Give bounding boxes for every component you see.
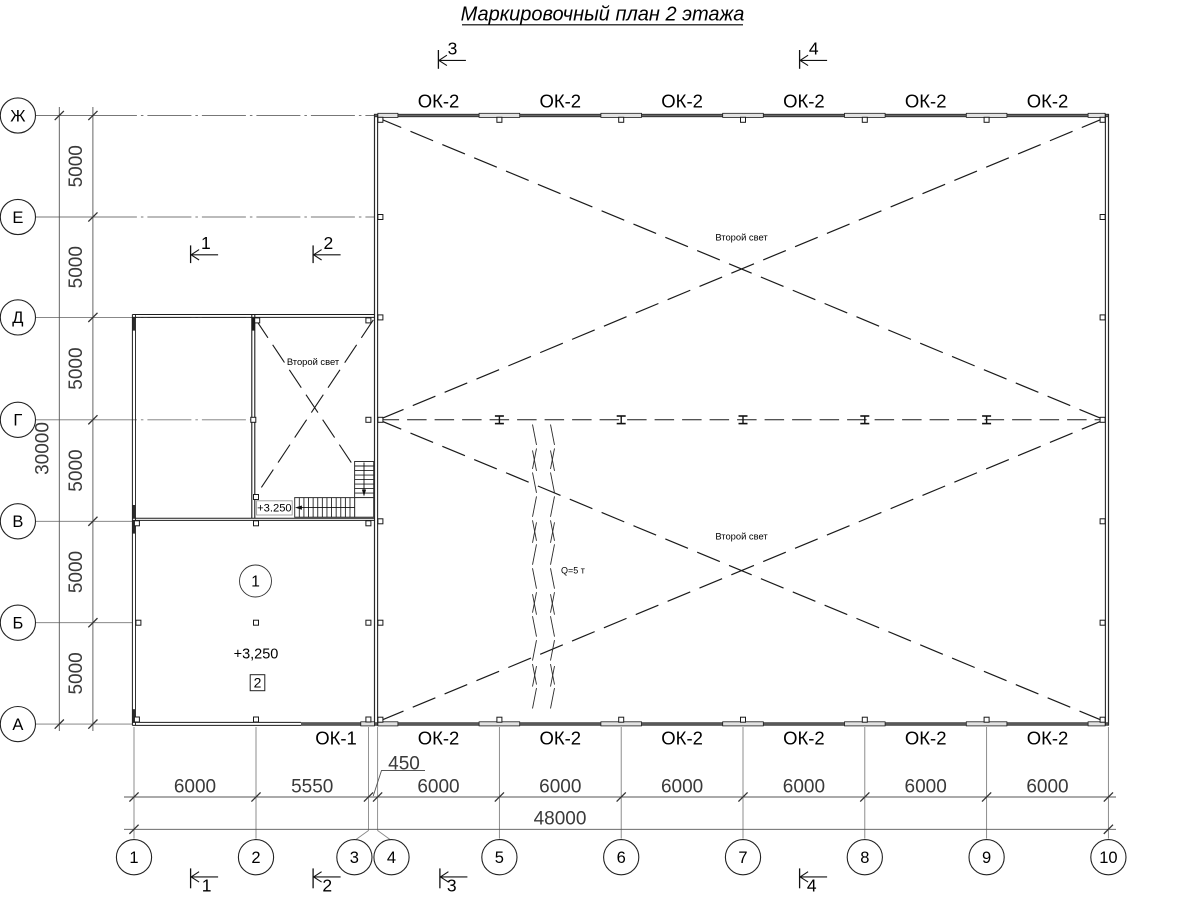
svg-text:2: 2 <box>322 875 332 895</box>
svg-text:6000: 6000 <box>661 777 703 798</box>
svg-text:5000: 5000 <box>66 347 87 389</box>
svg-text:Ж: Ж <box>10 107 26 125</box>
svg-text:4: 4 <box>809 39 819 59</box>
svg-text:Г: Г <box>13 412 22 430</box>
svg-text:6: 6 <box>617 849 626 867</box>
svg-text:А: А <box>12 716 23 734</box>
svg-text:ОК-2: ОК-2 <box>905 91 947 112</box>
svg-text:2: 2 <box>324 233 334 253</box>
svg-text:Второй свет: Второй свет <box>715 531 768 542</box>
svg-text:+3,250: +3,250 <box>234 647 279 663</box>
svg-text:1: 1 <box>201 233 211 253</box>
svg-text:Второй свет: Второй свет <box>715 232 768 243</box>
svg-text:6000: 6000 <box>417 777 459 798</box>
svg-text:5000: 5000 <box>66 551 87 593</box>
svg-text:5: 5 <box>495 849 504 867</box>
svg-text:ОК-1: ОК-1 <box>315 728 357 749</box>
svg-text:ОК-2: ОК-2 <box>661 728 703 749</box>
svg-text:450: 450 <box>388 754 420 775</box>
svg-text:2: 2 <box>254 675 262 691</box>
svg-text:Б: Б <box>12 615 23 633</box>
svg-text:1: 1 <box>202 875 212 895</box>
svg-text:Второй свет: Второй свет <box>287 356 340 367</box>
svg-text:7: 7 <box>738 849 747 867</box>
svg-text:3: 3 <box>447 875 457 895</box>
svg-text:ОК-2: ОК-2 <box>783 728 825 749</box>
svg-text:6000: 6000 <box>783 777 825 798</box>
svg-text:Q=5 т: Q=5 т <box>561 566 585 576</box>
svg-text:6000: 6000 <box>174 777 216 798</box>
svg-text:48000: 48000 <box>534 809 587 830</box>
svg-text:ОК-2: ОК-2 <box>539 91 581 112</box>
svg-text:6000: 6000 <box>905 777 947 798</box>
svg-text:ОК-2: ОК-2 <box>1027 728 1069 749</box>
svg-text:ОК-2: ОК-2 <box>905 728 947 749</box>
svg-text:3: 3 <box>350 849 359 867</box>
svg-text:8: 8 <box>860 849 869 867</box>
svg-text:2: 2 <box>251 849 260 867</box>
svg-text:1: 1 <box>129 849 138 867</box>
svg-text:ОК-2: ОК-2 <box>1027 91 1069 112</box>
svg-text:5000: 5000 <box>66 246 87 288</box>
svg-text:9: 9 <box>982 849 991 867</box>
svg-text:10: 10 <box>1099 849 1117 867</box>
svg-text:3: 3 <box>448 39 458 59</box>
svg-text:ОК-2: ОК-2 <box>661 91 703 112</box>
svg-text:5000: 5000 <box>66 145 87 187</box>
svg-text:4: 4 <box>807 875 817 895</box>
svg-text:ОК-2: ОК-2 <box>418 91 460 112</box>
svg-text:Д: Д <box>12 309 23 327</box>
svg-text:5000: 5000 <box>66 652 87 694</box>
svg-text:ОК-2: ОК-2 <box>539 728 581 749</box>
svg-text:В: В <box>12 513 23 531</box>
svg-text:Маркировочный план 2 этажа: Маркировочный план 2 этажа <box>461 4 745 26</box>
svg-text:+3.250: +3.250 <box>257 503 292 515</box>
svg-text:6000: 6000 <box>539 777 581 798</box>
svg-text:5550: 5550 <box>291 777 333 798</box>
svg-text:Е: Е <box>12 209 23 227</box>
svg-text:1: 1 <box>251 574 260 591</box>
svg-text:30000: 30000 <box>33 422 54 475</box>
svg-text:5000: 5000 <box>66 449 87 491</box>
svg-text:6000: 6000 <box>1026 777 1068 798</box>
svg-text:ОК-2: ОК-2 <box>783 91 825 112</box>
svg-text:ОК-2: ОК-2 <box>418 728 460 749</box>
svg-text:4: 4 <box>387 849 396 867</box>
